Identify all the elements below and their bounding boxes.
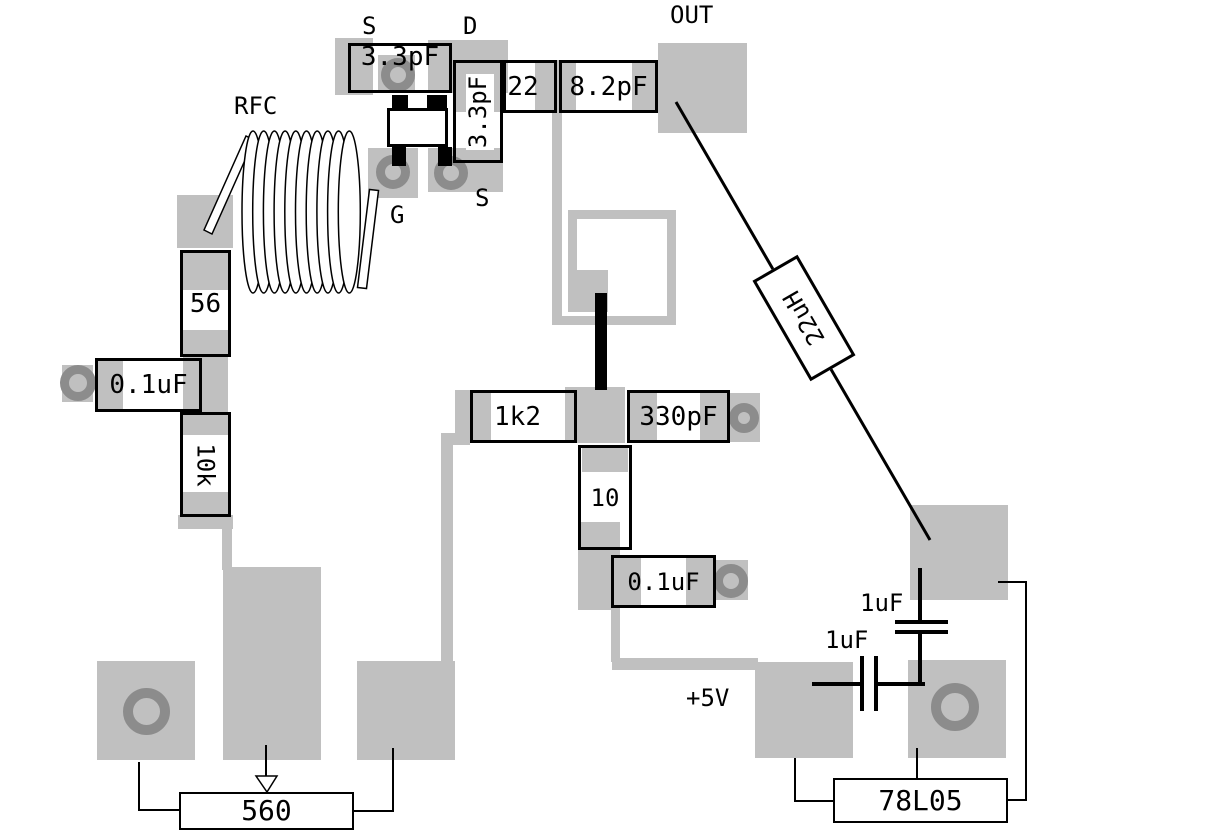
res-10k[interactable]: 10k: [180, 412, 231, 517]
reg-78l05-box[interactable]: 78L05: [833, 778, 1008, 823]
res-56[interactable]: 56: [180, 250, 231, 357]
res-10-value: 10: [591, 486, 620, 510]
label-plus5v: +5V: [686, 686, 729, 710]
ind-22uh-value: 22uH: [779, 287, 829, 349]
label-out: OUT: [670, 3, 713, 27]
cap-3p3-vert[interactable]: 3.3pF: [453, 60, 503, 163]
cap-3p3-top-value: 3.3pF: [361, 44, 439, 70]
fet-pad-bottom-right: [438, 147, 452, 166]
label-1uf-lower: 1uF: [825, 628, 868, 652]
label-1uf-upper: 1uF: [860, 591, 903, 615]
res-560-value: 560: [241, 797, 292, 825]
fet-body[interactable]: [387, 108, 448, 147]
cap-330p-value: 330pF: [639, 404, 717, 430]
reg-78l05-value: 78L05: [878, 787, 962, 815]
pcb-layout-board: 3.3pF 3.3pF 22 8.2pF 22uH 56 0.1uF 10k 1…: [0, 0, 1206, 833]
cap-0p1-mid-value: 0.1uF: [627, 570, 699, 594]
label-source-top: S: [362, 14, 376, 38]
res-1k2[interactable]: 1k2: [470, 390, 577, 443]
res-560-box[interactable]: 560: [179, 792, 354, 830]
fet-pad-bottom-left: [392, 147, 406, 166]
cap-0p1-left-value: 0.1uF: [109, 372, 187, 398]
fet-pad-top-right: [427, 95, 447, 108]
label-drain: D: [463, 14, 477, 38]
res-10[interactable]: 10: [578, 445, 632, 550]
jumper-link: [595, 293, 607, 390]
cap-22-value: 22: [507, 74, 538, 100]
cap-22[interactable]: 22: [503, 60, 557, 113]
cap-3p3-vert-value: 3.3pF: [466, 75, 490, 147]
wire-560-right: [354, 748, 393, 811]
label-rfc: RFC: [234, 94, 277, 118]
fet-pad-top-left: [392, 95, 408, 108]
wire-78l05-right: [998, 582, 1026, 800]
cap-0p1-left[interactable]: 0.1uF: [95, 358, 202, 412]
cap-3p3-top[interactable]: 3.3pF: [348, 43, 452, 93]
cap-330p[interactable]: 330pF: [627, 390, 730, 443]
wire-560-left: [139, 762, 179, 810]
label-gate: G: [390, 203, 404, 227]
cap-0p1-mid[interactable]: 0.1uF: [611, 555, 716, 608]
cap-8p2-value: 8.2pF: [569, 74, 647, 100]
wire-78l05-left: [795, 758, 833, 801]
res-10k-value: 10k: [193, 443, 217, 486]
cap-8p2[interactable]: 8.2pF: [559, 60, 658, 113]
res-56-value: 56: [190, 291, 221, 317]
arrowhead-560: [256, 776, 277, 792]
res-1k2-value: 1k2: [494, 404, 541, 430]
label-source-bottom: S: [475, 186, 489, 210]
